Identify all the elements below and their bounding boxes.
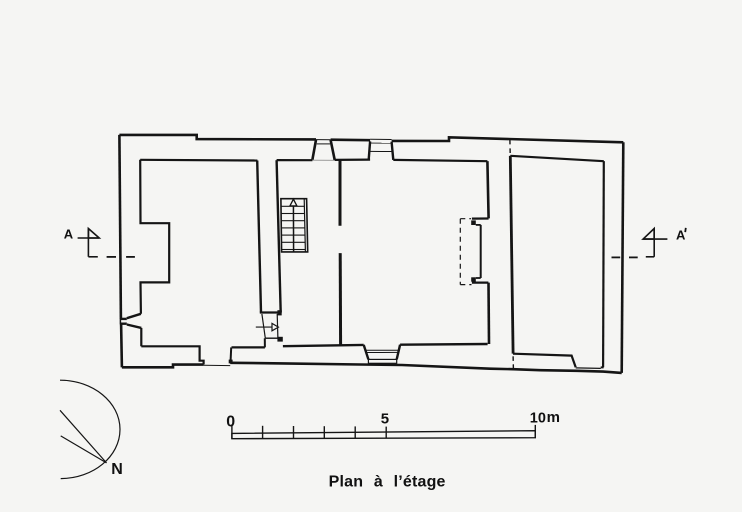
svg-text:A: A xyxy=(64,227,74,242)
svg-text:10: 10 xyxy=(530,410,546,426)
svg-text:Plan à l’étage: Plan à l’étage xyxy=(329,474,446,491)
svg-text:m: m xyxy=(547,409,560,426)
svg-text:N: N xyxy=(111,461,123,478)
svg-text:0: 0 xyxy=(226,413,235,430)
svg-text:5: 5 xyxy=(381,410,389,427)
svg-text:A: A xyxy=(676,227,686,242)
